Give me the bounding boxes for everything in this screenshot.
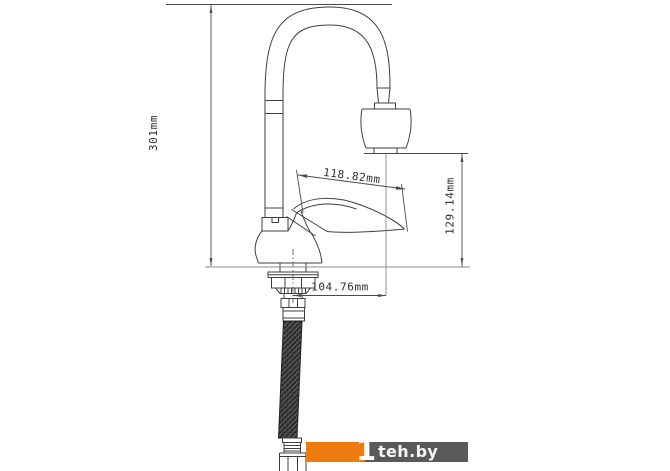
dimension-label-total-height: 301mm — [147, 115, 160, 151]
dimension-label-spout-offset: 104.76mm — [311, 281, 369, 294]
dimension-outlet-height: 129.14mm — [364, 154, 468, 267]
spray-head — [361, 88, 411, 154]
watermark-logo-mark: 1 — [356, 435, 376, 465]
handle — [287, 198, 405, 236]
faucet-technical-drawing: 301mm 129.14mm 104.76mm 118.82mm — [0, 0, 670, 471]
dimension-total-height: 301mm — [147, 5, 392, 267]
hose-end-fitting — [280, 438, 307, 471]
dimension-spout-offset: 104.76mm — [293, 281, 386, 298]
faucet-body — [255, 211, 322, 263]
supply-hose — [279, 321, 303, 438]
dimension-handle-length: 118.82mm — [297, 166, 408, 232]
dimension-label-outlet-height: 129.14mm — [444, 177, 457, 235]
dimension-label-handle-length: 118.82mm — [322, 166, 381, 186]
watermark-gray-bar: teh.by — [365, 442, 468, 462]
spout-arc — [265, 7, 390, 218]
drawing-svg: 301mm 129.14mm 104.76mm 118.82mm — [0, 0, 670, 471]
